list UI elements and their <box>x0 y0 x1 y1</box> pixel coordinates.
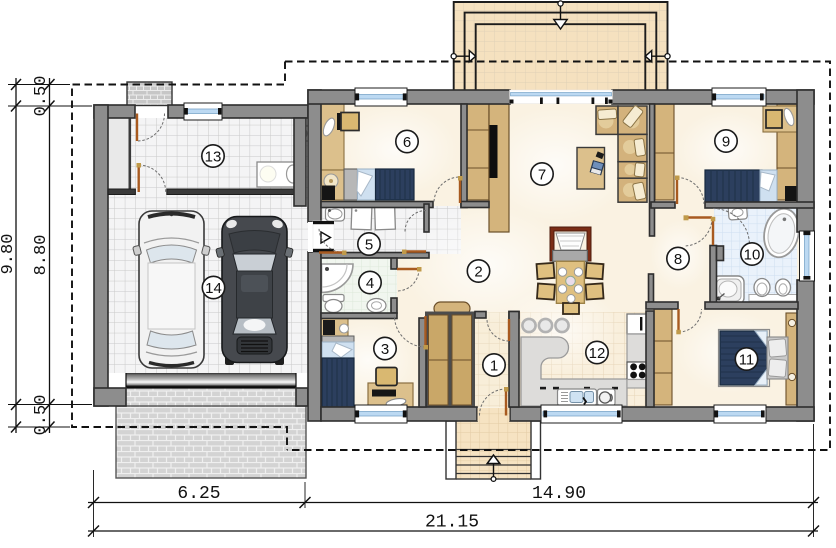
svg-text:0.50: 0.50 <box>32 76 51 117</box>
svg-text:12: 12 <box>589 345 606 362</box>
svg-text:14.90: 14.90 <box>532 484 586 504</box>
svg-text:9.80: 9.80 <box>0 234 18 275</box>
svg-text:4: 4 <box>366 275 374 292</box>
svg-text:6.25: 6.25 <box>177 484 220 504</box>
svg-text:13: 13 <box>205 148 222 165</box>
svg-text:10: 10 <box>744 246 761 263</box>
svg-text:0.50: 0.50 <box>32 395 51 436</box>
svg-text:1: 1 <box>490 357 498 374</box>
svg-text:9: 9 <box>722 133 730 150</box>
svg-text:11: 11 <box>739 351 755 368</box>
svg-text:14: 14 <box>205 280 222 297</box>
svg-text:8: 8 <box>674 251 682 268</box>
svg-text:2: 2 <box>474 263 482 280</box>
svg-text:7: 7 <box>538 166 546 183</box>
svg-text:21.15: 21.15 <box>425 513 479 533</box>
svg-text:5: 5 <box>365 236 373 253</box>
svg-text:3: 3 <box>381 341 389 358</box>
svg-text:8.80: 8.80 <box>32 235 51 276</box>
svg-text:6: 6 <box>403 134 411 151</box>
